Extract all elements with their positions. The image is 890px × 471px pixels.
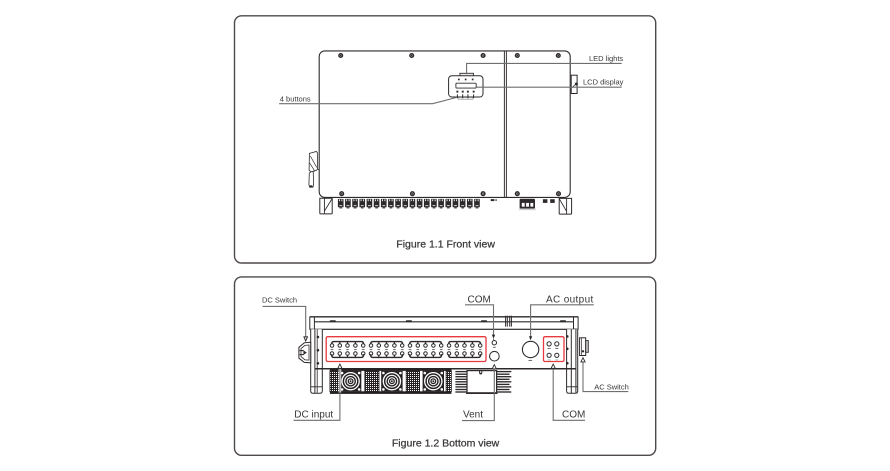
svg-text:4 buttons: 4 buttons [280, 94, 311, 103]
svg-text:Figure 1.1 Front view: Figure 1.1 Front view [396, 238, 495, 250]
svg-text:AC output: AC output [546, 294, 594, 305]
svg-text:Vent: Vent [463, 409, 483, 420]
svg-text:COM: COM [468, 294, 491, 305]
svg-text:LCD display: LCD display [583, 77, 624, 86]
svg-text:COM: COM [562, 409, 585, 420]
svg-text:LED lights: LED lights [589, 54, 623, 63]
svg-text:DC Switch: DC Switch [262, 296, 297, 305]
svg-text:Figure 1.2 Bottom view: Figure 1.2 Bottom view [392, 437, 500, 449]
svg-text:AC Switch: AC Switch [594, 383, 629, 392]
svg-text:DC input: DC input [294, 409, 333, 420]
